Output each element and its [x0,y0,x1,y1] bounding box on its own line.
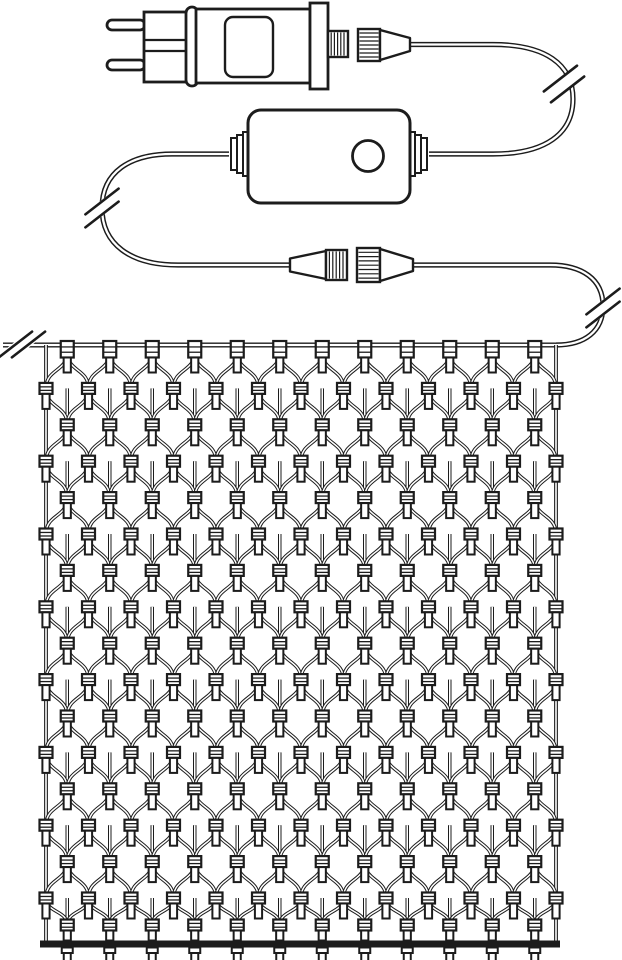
net-bulbs [40,341,563,960]
diagram-svg [0,0,622,960]
inline-screw-connector [290,250,347,280]
net-lights-diagram [0,0,622,960]
controller-button [353,141,384,172]
controller-box [231,110,427,203]
power-adapter [196,3,348,89]
inline-coupling-nut [357,248,413,282]
adapter-coupling-nut [358,29,410,61]
eu-plug [107,7,198,86]
